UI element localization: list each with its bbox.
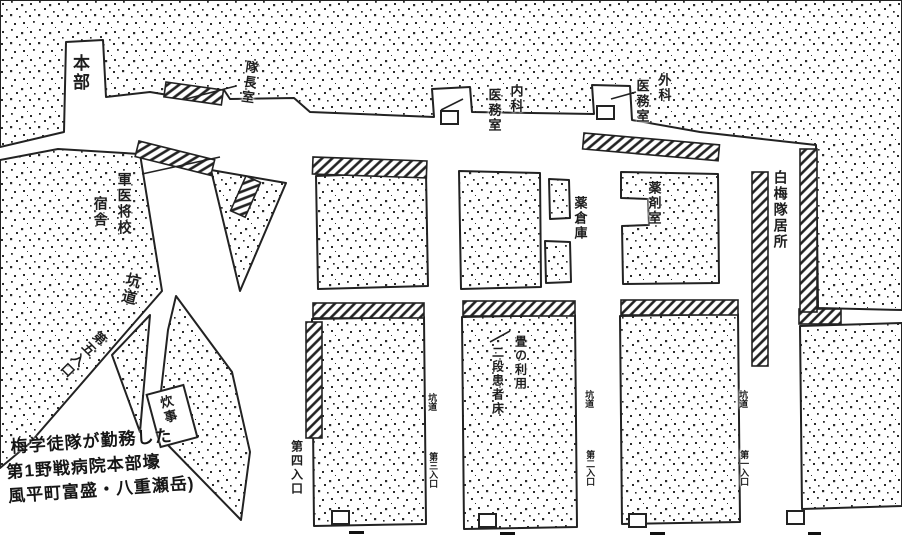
hatch-wall-shiraume-right: [800, 149, 817, 312]
label-surgery: 外科: [656, 73, 671, 103]
label-tunnel-small-2: 坑道: [584, 390, 594, 408]
label-entrance-2: 第二入口: [585, 450, 595, 486]
label-entrance-4: 第四入口: [289, 440, 302, 496]
hand-drawn-hospital-tunnel-map: 本部 隊長室 軍医将校 宿舎 坑道 第五入口 炊事 第四入口 内科 医務室 外科…: [0, 0, 902, 535]
label-headquarters: 本部: [70, 54, 89, 92]
label-internal-medicine: 内科: [508, 84, 523, 114]
label-internal-medicine-office: 医務室: [486, 88, 501, 133]
entrance-marker-bottom-2: [629, 514, 646, 527]
ward-hall-3: [620, 314, 740, 524]
hatch-wall-hall2-top: [463, 301, 575, 316]
storage-block-upper: [549, 179, 570, 219]
hatch-wall-hall3-top: [621, 300, 738, 315]
storage-block-lower: [545, 241, 571, 283]
label-medicine-storehouse: 薬倉庫: [572, 196, 587, 241]
room-block-2: [459, 171, 541, 289]
hatch-wall-hall1-left: [306, 322, 322, 438]
pharmacy-block: [621, 172, 719, 284]
hatch-wall-room1-top: [312, 157, 427, 178]
label-tatami-use: 畳の利用: [513, 335, 526, 391]
label-two-tier-patient-beds: 二段患者床: [490, 346, 503, 416]
entrance-marker-top-1: [441, 111, 458, 124]
entrance-marker-top-2: [597, 106, 614, 119]
label-pharmacy-room: 薬剤室: [646, 181, 661, 226]
rock-mass-bottom-right: [800, 323, 902, 509]
label-entrance-1: 第一入口: [739, 450, 749, 486]
label-tunnel-small-3: 坑道: [427, 393, 437, 411]
tick-mark: [349, 531, 364, 534]
ward-hall-1: [312, 317, 426, 526]
label-surgery-office: 医務室: [634, 79, 649, 124]
label-tunnel-small-1: 坑道: [738, 390, 748, 408]
label-entrance-3: 第三入口: [428, 452, 438, 488]
hatch-wall-hall1-top: [313, 303, 424, 318]
hatch-wall-shiraume-left: [752, 172, 768, 366]
entrance-marker-bottom-1: [787, 511, 804, 524]
label-shiraume-quarters: 白梅隊居所: [772, 170, 788, 250]
map-caption: 梅学徒隊が勤務した 第1野戦病院本部壕 風平町富盛・八重瀬岳): [4, 423, 195, 510]
room-block-1: [316, 172, 428, 289]
entrance-marker-bottom-4: [332, 511, 349, 524]
entrance-marker-bottom-3: [479, 514, 496, 527]
label-quarters: 宿舎: [92, 196, 108, 228]
label-medical-officers: 軍医将校: [116, 172, 132, 236]
